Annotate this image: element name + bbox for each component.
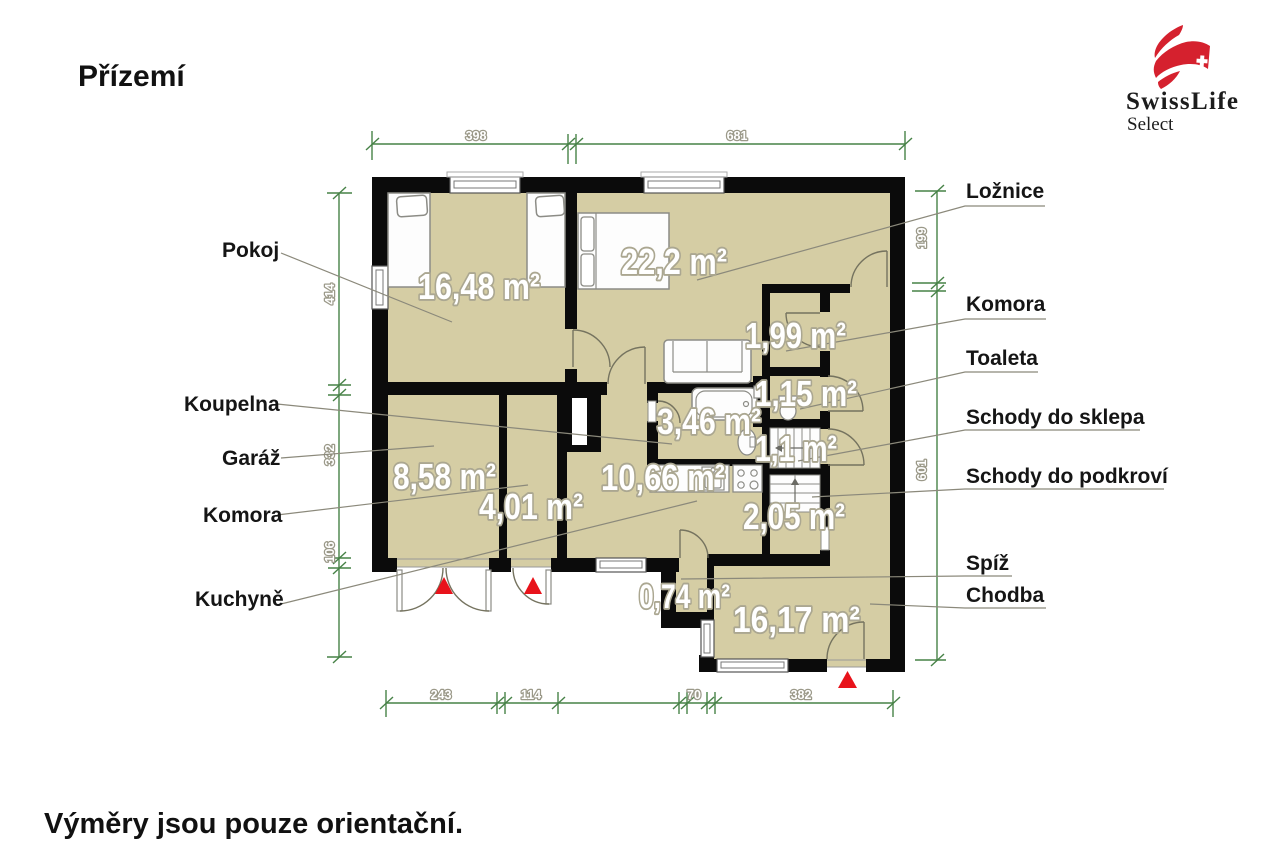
- svg-text:382: 382: [791, 688, 812, 702]
- svg-text:Select: Select: [1127, 114, 1174, 135]
- svg-text:16,48 m²: 16,48 m²: [418, 266, 540, 307]
- svg-text:414: 414: [323, 284, 337, 305]
- svg-text:106: 106: [323, 542, 337, 563]
- svg-text:681: 681: [727, 129, 748, 143]
- svg-text:243: 243: [431, 688, 452, 702]
- svg-text:70: 70: [687, 688, 701, 702]
- svg-text:Přízemí: Přízemí: [78, 60, 186, 93]
- svg-text:114: 114: [521, 688, 541, 702]
- svg-text:Garáž: Garáž: [222, 447, 280, 470]
- svg-text:16,17 m²: 16,17 m²: [733, 599, 860, 640]
- svg-text:Komora: Komora: [203, 504, 283, 527]
- svg-text:1,15 m²: 1,15 m²: [755, 373, 857, 414]
- svg-text:Komora: Komora: [966, 293, 1046, 316]
- svg-text:10,66 m²: 10,66 m²: [601, 457, 725, 498]
- svg-text:Výměry jsou pouze orientační.: Výměry jsou pouze orientační.: [44, 808, 463, 840]
- svg-text:Toaleta: Toaleta: [966, 347, 1038, 370]
- svg-text:Chodba: Chodba: [966, 584, 1044, 607]
- svg-text:398: 398: [466, 129, 487, 143]
- svg-text:601: 601: [915, 460, 929, 481]
- svg-text:Pokoj: Pokoj: [222, 239, 279, 262]
- svg-text:2,05 m²: 2,05 m²: [743, 496, 845, 537]
- svg-text:Kuchyně: Kuchyně: [195, 588, 284, 611]
- svg-text:4,01 m²: 4,01 m²: [479, 486, 583, 527]
- svg-text:1,1 m²: 1,1 m²: [755, 428, 837, 469]
- svg-text:SwissLife: SwissLife: [1126, 88, 1238, 115]
- svg-text:Schody do podkroví: Schody do podkroví: [966, 465, 1169, 488]
- svg-text:0,74 m²: 0,74 m²: [639, 578, 730, 616]
- svg-text:3,46 m²: 3,46 m²: [657, 401, 761, 442]
- svg-text:Ložnice: Ložnice: [966, 180, 1044, 203]
- svg-text:22,2 m²: 22,2 m²: [621, 241, 727, 282]
- svg-text:1,99 m²: 1,99 m²: [745, 315, 846, 356]
- svg-text:199: 199: [915, 228, 929, 249]
- svg-text:Spíž: Spíž: [966, 552, 1009, 575]
- svg-text:Koupelna: Koupelna: [184, 393, 280, 416]
- svg-text:Schody do sklepa: Schody do sklepa: [966, 406, 1145, 429]
